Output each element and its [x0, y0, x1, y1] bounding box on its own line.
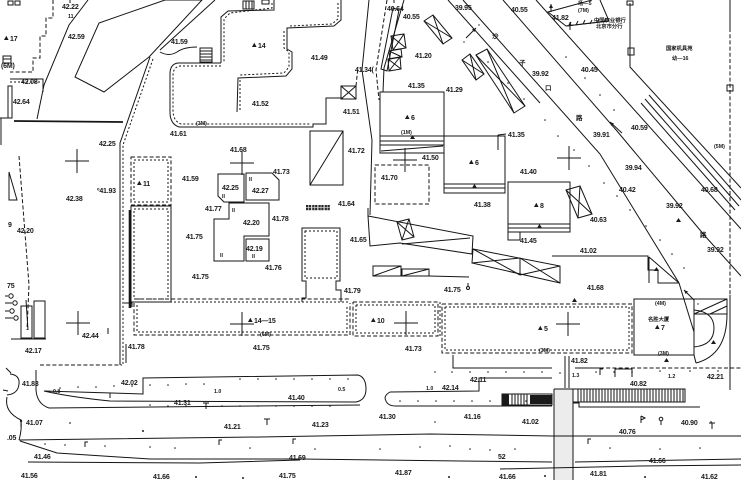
svg-text:41.31: 41.31 [174, 400, 191, 407]
svg-text:41.64: 41.64 [338, 201, 355, 208]
svg-text:路: 路 [700, 230, 707, 239]
svg-text:41.20: 41.20 [415, 53, 432, 60]
svg-text:41.65: 41.65 [350, 237, 367, 244]
svg-text:40.63: 40.63 [590, 217, 607, 224]
svg-text:1.0: 1.0 [214, 389, 221, 395]
svg-text:41.73: 41.73 [405, 346, 422, 353]
svg-text:41.02: 41.02 [580, 248, 597, 255]
svg-text:42.59: 42.59 [68, 34, 85, 41]
svg-text:6: 6 [475, 160, 479, 167]
svg-text:子: 子 [519, 59, 526, 67]
svg-text:41.61: 41.61 [170, 131, 187, 138]
svg-text:42.25: 42.25 [222, 185, 239, 192]
svg-text:41.45: 41.45 [520, 238, 537, 245]
svg-text:41.16: 41.16 [464, 414, 481, 421]
svg-text:41.38: 41.38 [474, 202, 491, 209]
svg-text:41.75: 41.75 [186, 234, 203, 241]
svg-text:41.50: 41.50 [422, 155, 439, 162]
svg-text:41.87: 41.87 [395, 470, 412, 477]
svg-text:39.91: 39.91 [593, 132, 610, 139]
svg-text:41.62: 41.62 [701, 474, 718, 480]
svg-text:41.34(: 41.34( [355, 67, 375, 74]
svg-text:40.64: 40.64 [387, 6, 404, 13]
svg-text:41.59: 41.59 [171, 39, 188, 46]
svg-text:42.38: 42.38 [66, 196, 83, 203]
svg-text:40.45: 40.45 [581, 67, 598, 74]
svg-text:41.75: 41.75 [192, 274, 209, 281]
svg-text:40.82: 40.82 [630, 381, 647, 388]
svg-text:(6M): (6M) [260, 332, 271, 338]
svg-text:41.72: 41.72 [348, 148, 365, 155]
svg-text:42.08: 42.08 [21, 79, 38, 86]
svg-text:41.70: 41.70 [381, 175, 398, 182]
svg-text:40.55: 40.55 [403, 14, 420, 21]
svg-text:0.5: 0.5 [338, 387, 345, 393]
svg-text:0.8: 0.8 [53, 389, 60, 395]
svg-text:42.19: 42.19 [246, 246, 263, 253]
svg-text:II: II [232, 208, 235, 214]
svg-text:.05: .05 [7, 435, 16, 442]
svg-text:39.92: 39.92 [666, 203, 683, 210]
svg-text:41.66: 41.66 [153, 474, 170, 480]
svg-text:10: 10 [377, 318, 385, 325]
svg-text:幼—16: 幼—16 [672, 54, 689, 62]
svg-text:º41.93: º41.93 [97, 188, 116, 195]
svg-text:14: 14 [258, 43, 266, 50]
svg-text:40.59: 40.59 [631, 125, 648, 132]
svg-text:II: II [222, 194, 225, 200]
svg-text:11: 11 [143, 181, 150, 188]
svg-text:41.51: 41.51 [343, 109, 360, 116]
svg-text:41.76: 41.76 [265, 265, 282, 272]
svg-text:41.02: 41.02 [522, 419, 539, 426]
svg-text:42.17: 42.17 [25, 348, 42, 355]
svg-text:42.21: 42.21 [707, 374, 724, 381]
svg-text:8: 8 [540, 203, 544, 210]
svg-text:41.21: 41.21 [224, 424, 241, 431]
svg-text:39.94: 39.94 [625, 165, 642, 172]
svg-text:41.78: 41.78 [128, 344, 145, 351]
svg-text:41.82: 41.82 [552, 15, 569, 22]
svg-text:75: 75 [7, 283, 15, 290]
svg-text:40.55: 40.55 [511, 7, 528, 14]
svg-text:41.07: 41.07 [26, 420, 43, 427]
svg-text:41.75: 41.75 [279, 473, 296, 480]
svg-text:42.20: 42.20 [243, 220, 260, 227]
svg-text:41.75: 41.75 [253, 345, 270, 352]
svg-text:40.68: 40.68 [701, 187, 718, 194]
svg-text:(1M): (1M) [401, 130, 412, 136]
svg-text:41.77: 41.77 [205, 206, 222, 213]
svg-text:42.64: 42.64 [13, 99, 30, 106]
svg-text:(4M): (4M) [655, 301, 666, 307]
svg-text:41.30: 41.30 [379, 414, 396, 421]
svg-text:(6M): (6M) [1, 63, 15, 70]
svg-text:39.92: 39.92 [532, 71, 549, 78]
svg-text:II: II [249, 177, 252, 183]
svg-text:中国农业银行: 中国农业银行 [594, 16, 626, 24]
svg-text:41.79: 41.79 [344, 288, 361, 295]
svg-text:41.35: 41.35 [408, 83, 425, 90]
svg-text:II: II [252, 254, 255, 260]
svg-text:名胜大厦: 名胜大厦 [648, 315, 670, 323]
svg-text:40.76: 40.76 [619, 429, 636, 436]
svg-text:41.35: 41.35 [508, 132, 525, 139]
svg-text:(3M): (3M) [539, 348, 550, 354]
svg-text:41.52: 41.52 [252, 101, 269, 108]
svg-text:国家机具苑: 国家机具苑 [666, 44, 693, 52]
svg-text:(5M): (5M) [714, 144, 725, 150]
svg-text:5: 5 [544, 326, 548, 333]
svg-text:沙: 沙 [492, 32, 499, 40]
svg-text:42.25: 42.25 [99, 141, 116, 148]
svg-text:42.44: 42.44 [82, 333, 99, 340]
svg-text:41.81: 41.81 [590, 471, 607, 478]
svg-text:41.68: 41.68 [587, 285, 604, 292]
svg-text:52: 52 [498, 454, 506, 461]
svg-text:9: 9 [8, 222, 12, 229]
svg-text:41.82: 41.82 [571, 358, 588, 365]
svg-text:41.40: 41.40 [520, 169, 537, 176]
svg-text:41.49: 41.49 [311, 55, 328, 62]
svg-text:(7M): (7M) [578, 8, 589, 14]
svg-text:41.56: 41.56 [21, 473, 38, 480]
svg-text:42.20: 42.20 [17, 228, 34, 235]
svg-text:11: 11 [68, 14, 74, 20]
svg-text:II: II [220, 253, 223, 259]
svg-text:41.66: 41.66 [499, 474, 516, 480]
svg-text:(3M): (3M) [658, 351, 669, 357]
svg-text:41.78: 41.78 [272, 216, 289, 223]
svg-text:14—15: 14—15 [254, 318, 276, 325]
svg-text:6: 6 [411, 115, 415, 122]
svg-text:17: 17 [10, 36, 18, 43]
svg-text:场—5: 场—5 [578, 0, 592, 7]
svg-text:41.29: 41.29 [446, 87, 463, 94]
svg-text:41.69: 41.69 [289, 455, 306, 462]
svg-text:1.2: 1.2 [668, 374, 675, 380]
svg-text:39.92: 39.92 [707, 247, 724, 254]
svg-text:42.22: 42.22 [62, 4, 79, 11]
svg-text:41.46: 41.46 [34, 454, 51, 461]
svg-text:42.27: 42.27 [252, 188, 269, 195]
svg-text:(3M): (3M) [196, 121, 207, 127]
svg-text:口: 口 [545, 84, 552, 92]
svg-text:41.73: 41.73 [273, 169, 290, 176]
svg-text:1.3: 1.3 [572, 373, 579, 379]
svg-text:7: 7 [661, 325, 665, 332]
svg-text:北京市分行: 北京市分行 [596, 22, 623, 30]
svg-text:路: 路 [576, 113, 583, 122]
svg-text:41.75: 41.75 [444, 287, 461, 294]
svg-text:41.40: 41.40 [288, 395, 305, 402]
svg-text:40.42: 40.42 [619, 187, 636, 194]
svg-text:40.90: 40.90 [681, 420, 698, 427]
svg-text:42.02: 42.02 [121, 380, 138, 387]
svg-text:41.59: 41.59 [182, 176, 199, 183]
svg-text:41.68: 41.68 [230, 147, 247, 154]
svg-text:41.23: 41.23 [312, 422, 329, 429]
svg-text:41.66: 41.66 [649, 458, 666, 465]
